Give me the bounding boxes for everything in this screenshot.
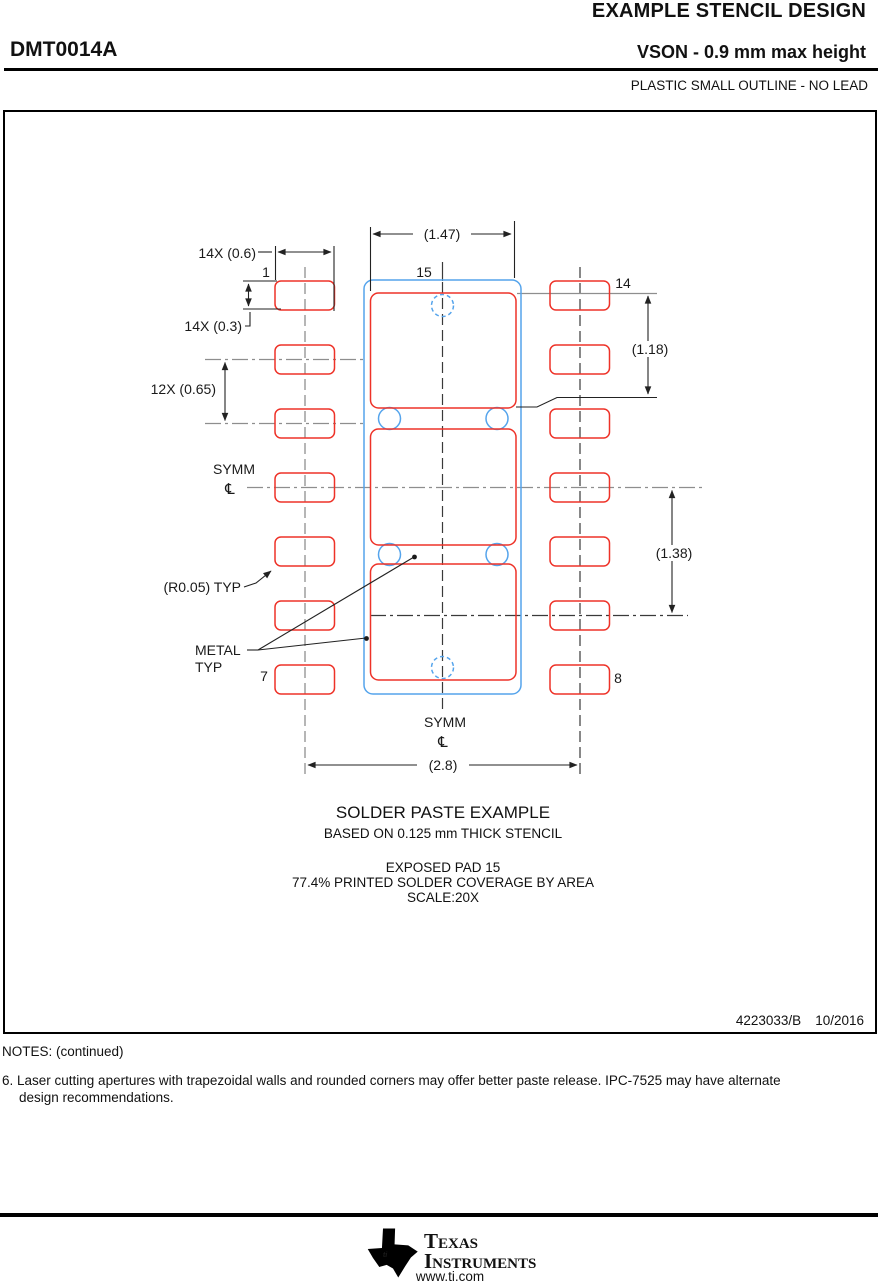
caption-coverage: 77.4% PRINTED SOLDER COVERAGE BY AREA — [103, 875, 783, 890]
pin-label-15: 15 — [416, 264, 432, 280]
leader-corner-radius: (R0.05) TYP — [163, 571, 271, 595]
caption-title: SOLDER PASTE EXAMPLE — [103, 803, 783, 823]
caption-exposed-pad: EXPOSED PAD 15 — [103, 860, 783, 875]
brand-name: Texas Instruments — [424, 1231, 536, 1272]
dim-row-to-row: (2.8) — [308, 756, 577, 773]
corner-radius-label: (R0.05) TYP — [163, 579, 241, 595]
dim-pad-pitch-label: 12X (0.65) — [151, 381, 216, 397]
epad-aperture-3 — [371, 564, 517, 680]
epad-aperture-1 — [371, 293, 517, 408]
footer-divider — [0, 1213, 878, 1217]
dim-pad-width-label: 14X (0.6) — [198, 245, 256, 261]
centerlines — [205, 262, 702, 777]
symm-left-label: SYMM — [213, 461, 255, 477]
dim-epad-lower-span: (1.38) — [651, 491, 697, 613]
metal-label-line2: TYP — [195, 659, 222, 675]
note-6-line2: design recommendations. — [19, 1090, 174, 1105]
symm-bottom: SYMM ℄ — [424, 714, 466, 751]
dim-pad-height: 14X (0.3) — [184, 281, 281, 334]
pin-label-14: 14 — [615, 275, 631, 291]
dim-row-to-row-label: (2.8) — [429, 757, 458, 773]
leader-metal: METAL TYP — [195, 555, 417, 675]
doc-date: 10/2016 — [815, 1013, 864, 1028]
dim-pad-height-label: 14X (0.3) — [184, 318, 242, 334]
notes-heading: NOTES: (continued) — [2, 1044, 124, 1059]
dim-pad-pitch: 12X (0.65) — [151, 363, 225, 421]
dim-epad-segment-height: (1.18) — [516, 296, 673, 407]
centerline-symbol: ℄ — [224, 480, 235, 498]
ti-url: www.ti.com — [0, 1269, 878, 1284]
dim-epad-lower-span-label: (1.38) — [656, 545, 693, 561]
metal-label-line1: METAL — [195, 642, 241, 658]
pin-label-7: 7 — [260, 668, 268, 684]
pin-label-1: 1 — [262, 264, 270, 280]
symm-bottom-label: SYMM — [424, 714, 466, 730]
pin-label-8: 8 — [614, 670, 622, 686]
caption-stencil-note: BASED ON 0.125 mm THICK STENCIL — [103, 826, 783, 841]
note-6-line1: 6. Laser cutting apertures with trapezoi… — [2, 1073, 781, 1088]
symm-left: SYMM ℄ — [213, 461, 255, 498]
caption-scale: SCALE:20X — [103, 890, 783, 905]
dim-epad-width-label: (1.47) — [424, 226, 461, 242]
doc-reference: 4223033/B10/2016 — [736, 1013, 864, 1028]
caption-block: SOLDER PASTE EXAMPLE BASED ON 0.125 mm T… — [103, 803, 783, 905]
centerline-symbol: ℄ — [437, 733, 448, 751]
dim-epad-segment-height-label: (1.18) — [632, 341, 669, 357]
doc-number: 4223033/B — [736, 1013, 801, 1028]
